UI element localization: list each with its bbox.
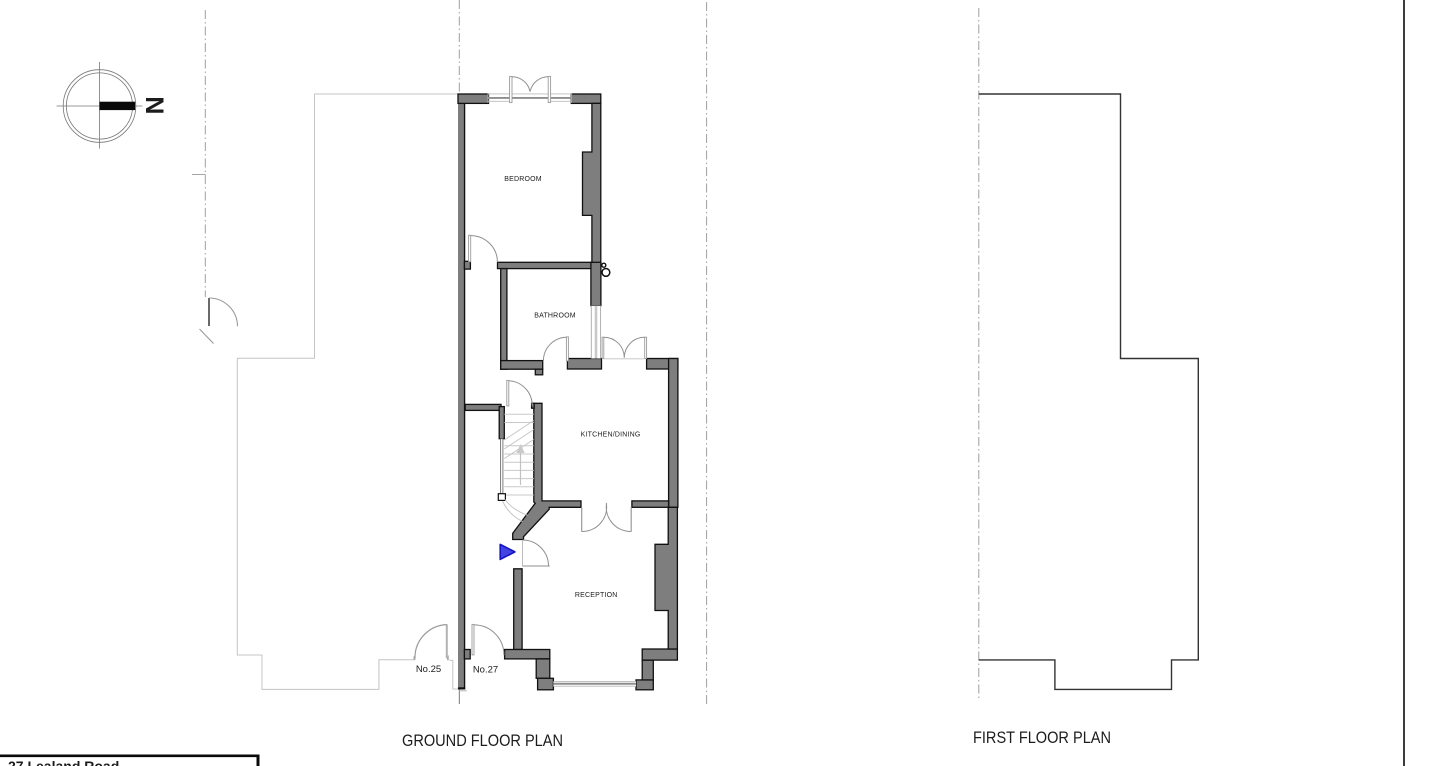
svg-text:RECEPTION: RECEPTION xyxy=(575,592,618,599)
svg-text:No.27: No.27 xyxy=(473,664,498,675)
svg-text:BEDROOM: BEDROOM xyxy=(504,176,542,183)
svg-text:KITCHEN/DINING: KITCHEN/DINING xyxy=(581,432,641,439)
svg-text:No.25: No.25 xyxy=(416,664,441,675)
svg-text:GROUND FLOOR PLAN: GROUND FLOOR PLAN xyxy=(402,731,563,750)
svg-text:BATHROOM: BATHROOM xyxy=(534,312,576,319)
svg-text:FIRST FLOOR PLAN: FIRST FLOOR PLAN xyxy=(973,728,1111,747)
svg-text:27 Lealand Road: 27 Lealand Road xyxy=(8,758,119,766)
svg-text:N: N xyxy=(140,96,168,114)
